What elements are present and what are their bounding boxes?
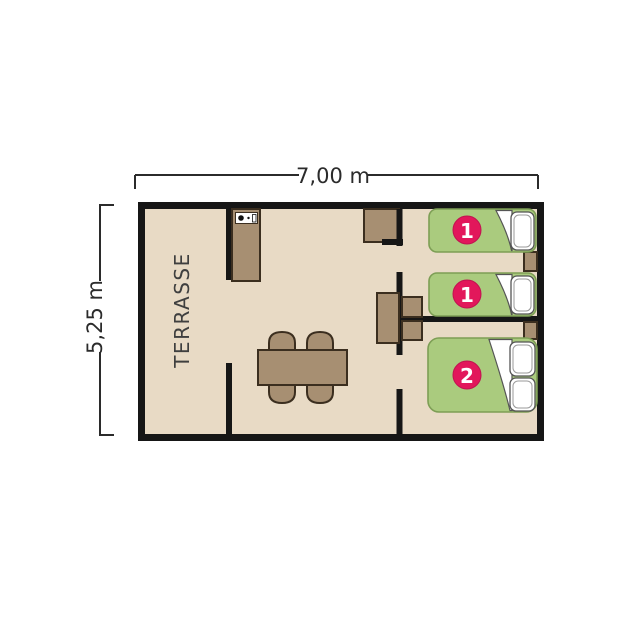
width-dimension-label: 7,00 m: [296, 164, 370, 188]
shelf-bedroom2: [402, 321, 422, 340]
bedroom-wall-upper: [397, 209, 403, 246]
single-bed-top: [429, 209, 536, 252]
chair: [307, 385, 333, 403]
badge-number-bed1b: 1: [460, 283, 474, 307]
chair: [269, 332, 295, 350]
height-dimension-label: 5,25 m: [83, 280, 107, 354]
wardrobe-living-side: [377, 293, 399, 343]
stove-burner-icon: [238, 215, 244, 221]
single-bed-middle: [429, 273, 536, 316]
stove-knob-icon: [247, 217, 249, 219]
chair: [307, 332, 333, 350]
double-bed: [428, 338, 537, 412]
floor-plan-drawing: 7,00 m 5,25 m TERRASSE: [0, 0, 640, 640]
badge-number-bed2: 2: [460, 364, 474, 388]
bedroom-wall-lower: [397, 389, 403, 434]
wardrobe-top: [364, 209, 399, 242]
terrace-label: TERRASSE: [170, 252, 194, 369]
nightstand-bedroom1: [524, 252, 537, 271]
floor-plan-page: 7,00 m 5,25 m TERRASSE: [0, 0, 640, 640]
chair: [269, 385, 295, 403]
terrace-wall-bottom: [226, 363, 232, 434]
kitchen-unit: [232, 209, 260, 281]
badge-number-bed1a: 1: [460, 219, 474, 243]
nightstand-bedroom2: [524, 322, 537, 339]
dining-table: [258, 350, 347, 385]
shelf-bedroom1: [402, 297, 422, 317]
